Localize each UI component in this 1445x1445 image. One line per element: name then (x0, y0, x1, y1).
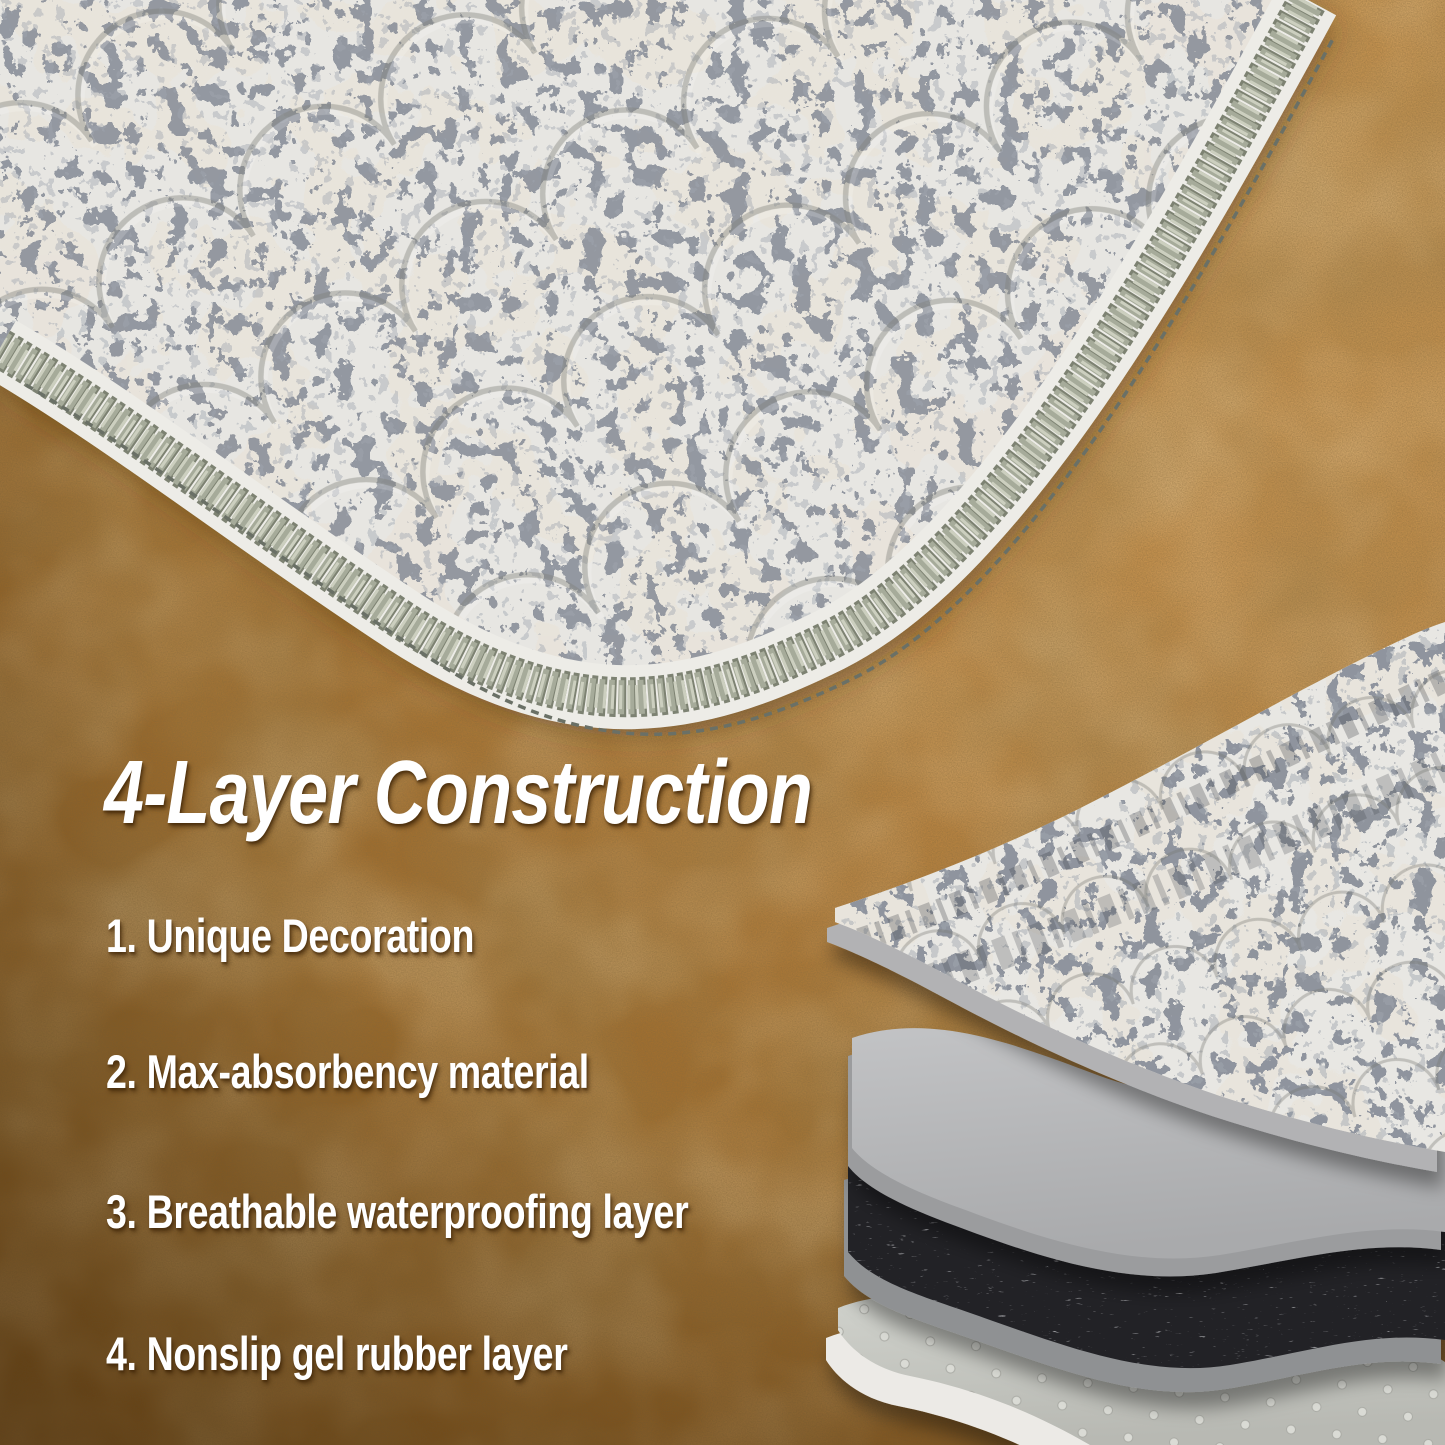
feature-item-unique-decoration: 1. Unique Decoration (106, 910, 474, 962)
headline-title: 4-Layer Construction (104, 746, 812, 841)
product-infographic: 4-Layer Construction 1. Unique Decoratio… (0, 0, 1445, 1445)
feature-item-max-absorbency: 2. Max-absorbency material (106, 1046, 589, 1098)
feature-item-nonslip-gel-rubber: 4. Nonslip gel rubber layer (106, 1328, 567, 1380)
feature-item-breathable-waterproofing: 3. Breathable waterproofing layer (106, 1186, 688, 1238)
